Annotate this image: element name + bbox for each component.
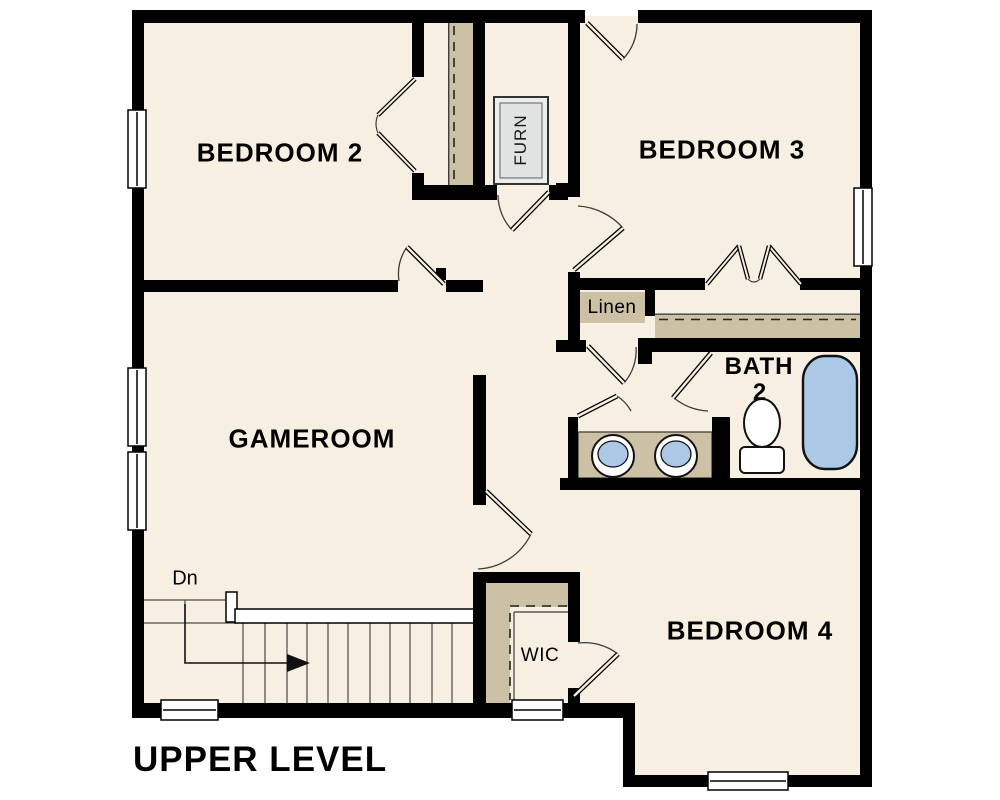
window [512,700,563,720]
bedroom3-closet-shelf [655,315,860,338]
label-bedroom3: BEDROOM 3 [639,135,805,166]
window [708,772,788,790]
window [128,110,146,188]
window [854,188,872,266]
label-gameroom: GAMEROOM [229,424,396,455]
sink-right [655,435,697,477]
label-wic: WIC [521,645,559,667]
bathtub [803,356,857,469]
toilet [740,399,784,473]
label-linen: Linen [588,297,637,319]
window [128,452,146,530]
stair-rail [235,609,474,623]
bedroom2-closet-shelf [448,23,473,185]
label-stairs-down: Dn [172,568,198,591]
label-bath-number: 2 [753,379,767,407]
page-title: UPPER LEVEL [133,740,387,780]
label-bedroom4: BEDROOM 4 [667,616,833,647]
window [161,700,218,720]
floor-plan: BEDROOM 2 BEDROOM 3 GAMEROOM BEDROOM 4 B… [0,0,1000,800]
label-bedroom2: BEDROOM 2 [197,138,363,169]
label-furnace: FURN [511,114,531,165]
sink-left [592,435,634,477]
wic-shelf-left [486,583,510,703]
floor-plan-drawing [0,0,1000,800]
window [128,368,146,446]
label-bath: BATH [725,353,794,381]
